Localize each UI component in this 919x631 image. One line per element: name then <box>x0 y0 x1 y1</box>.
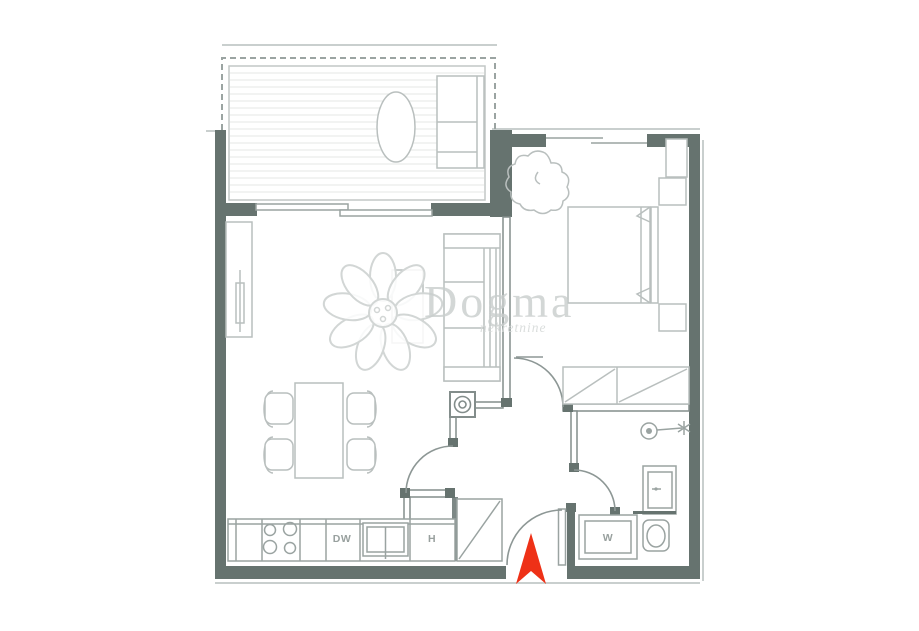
wall-bottom-left <box>215 566 506 579</box>
wall-bedroom-bathroom <box>563 404 689 411</box>
kitchen: DW H <box>228 499 502 561</box>
dining-set <box>264 383 376 478</box>
bedroom-shelf <box>666 139 687 177</box>
dining-chair <box>265 393 293 424</box>
plant-icon <box>506 151 569 213</box>
balcony-sliding-door <box>256 204 432 216</box>
watermark-tagline: nekretnine <box>480 320 546 335</box>
nightstand <box>659 304 686 331</box>
dining-table <box>295 383 343 478</box>
boiler <box>450 392 475 417</box>
wall-hall-stub <box>404 497 410 521</box>
dishwasher-label: DW <box>333 533 352 545</box>
washer-label: W <box>603 532 613 544</box>
wall-boiler-stub <box>450 417 456 441</box>
bedroom-window <box>546 138 647 143</box>
wall-balcony-bottom-left <box>215 203 257 216</box>
living-room-door <box>406 446 453 493</box>
toilet-icon <box>643 520 669 551</box>
dining-chair <box>265 439 293 470</box>
wall-right <box>689 138 700 579</box>
vanity-sink <box>633 466 676 514</box>
entrance-arrow-icon <box>516 533 546 584</box>
wardrobe <box>563 367 689 404</box>
dining-chair <box>347 439 375 470</box>
balcony-bench <box>437 76 484 168</box>
bedroom-door <box>514 357 563 407</box>
entrance-door-leaf <box>559 509 566 565</box>
wall-balcony-bottom-right <box>431 203 492 216</box>
tall-cabinet <box>457 499 502 561</box>
balcony <box>222 58 495 200</box>
bedroom <box>506 139 689 404</box>
wall-hall-lower <box>404 490 452 497</box>
kitchen-sink-icon <box>363 523 408 559</box>
bathroom: W <box>579 421 690 559</box>
hood-label: H <box>428 533 436 545</box>
double-bed <box>568 207 658 303</box>
nightstand <box>659 178 686 205</box>
washing-machine: W <box>579 515 637 559</box>
wall-bathroom-left-upper <box>571 411 577 464</box>
dining-chair <box>347 393 375 424</box>
wall-bottom-right <box>567 566 700 579</box>
wall-left <box>215 130 226 579</box>
shower-head-icon <box>641 421 690 439</box>
bathroom-door <box>574 470 615 511</box>
floor-plan-svg: DW H <box>0 0 919 631</box>
floor-plan-page: DW H <box>0 0 919 631</box>
wall-hall-top <box>474 402 503 408</box>
tv-unit <box>226 222 252 337</box>
balcony-table <box>377 92 415 162</box>
wall-bathroom-left-lower <box>567 505 575 566</box>
